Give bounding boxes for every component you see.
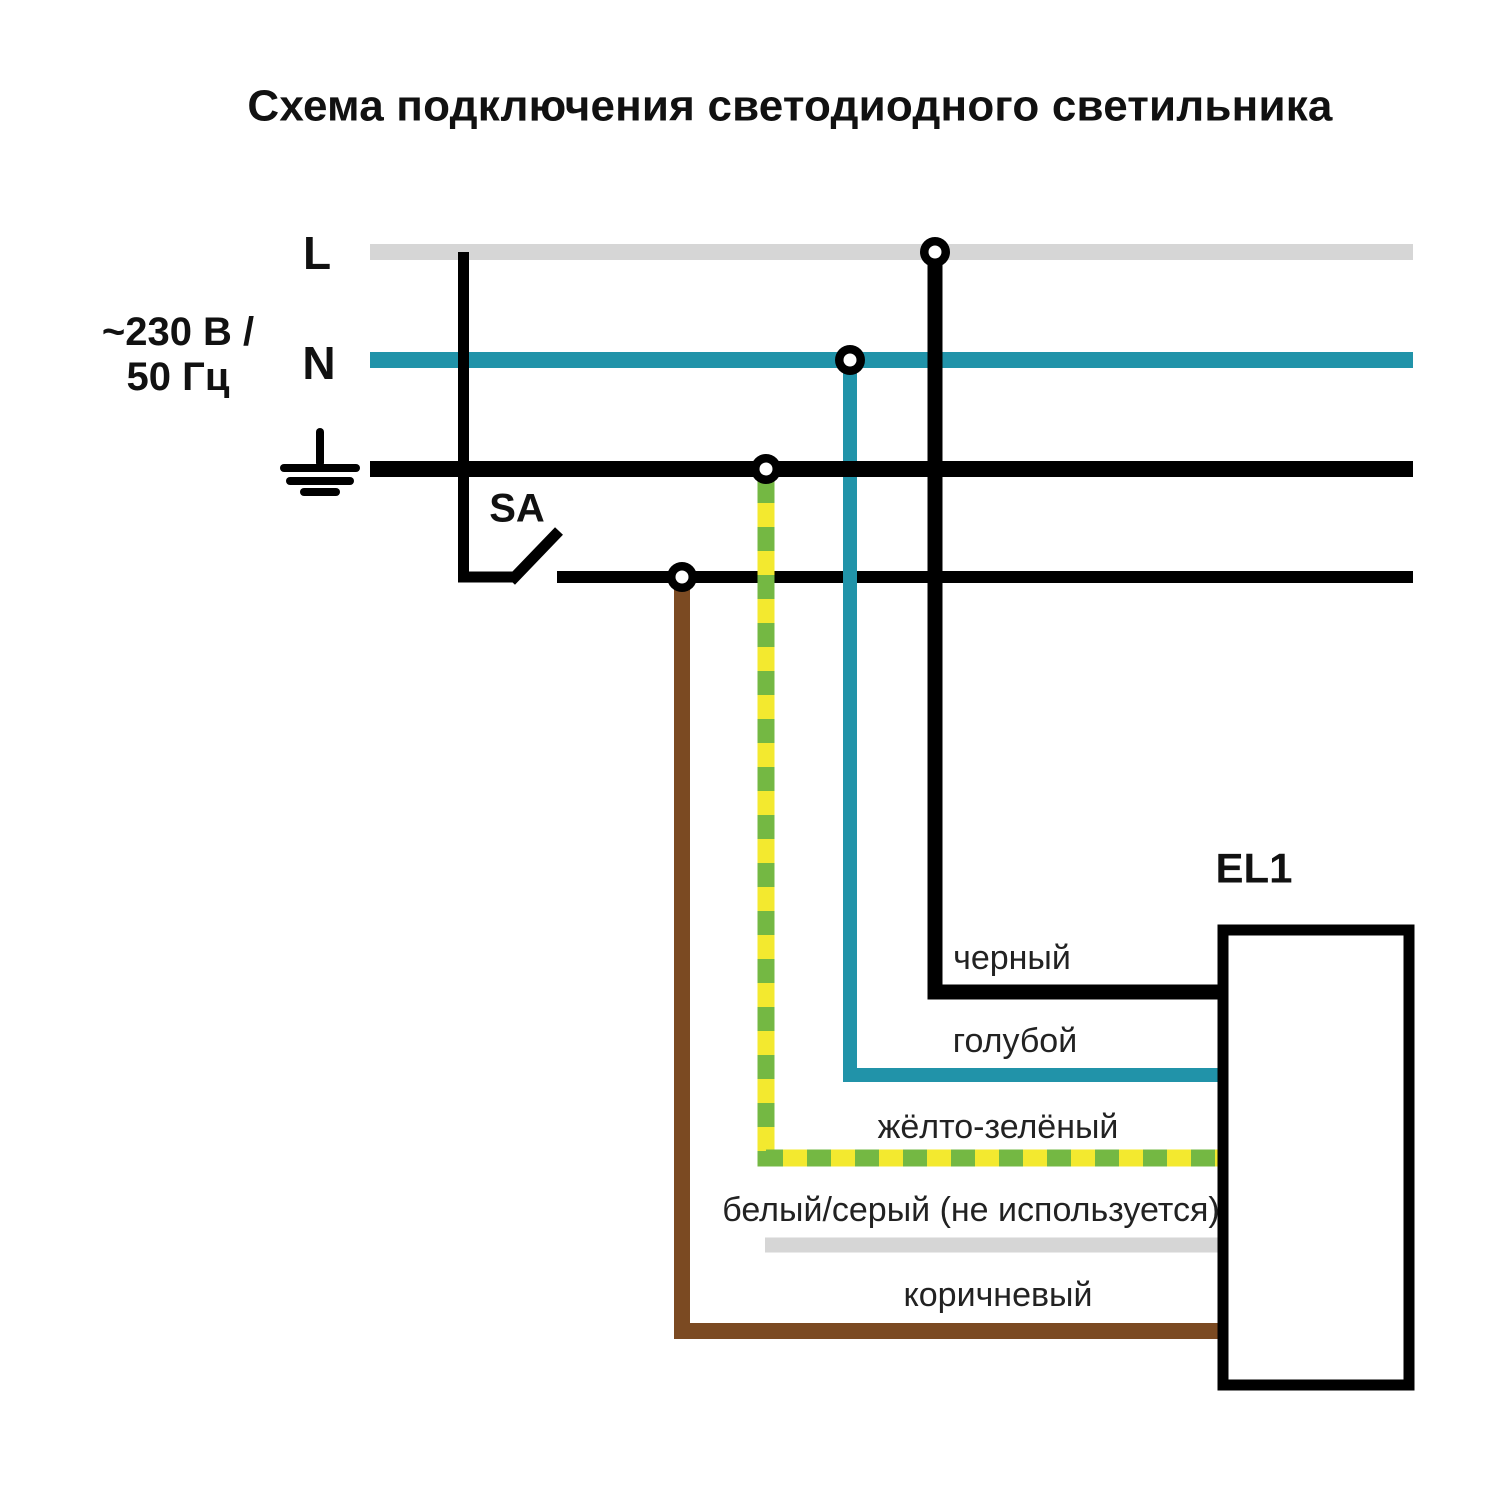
earth-ground-icon: [284, 432, 356, 492]
supply-rating-label: ~230 В / 50 Гц: [102, 310, 254, 400]
luminaire-EL1-label: EL1: [1215, 844, 1292, 891]
terminal-dot-N-center: [844, 354, 857, 367]
switch-blade-icon: [511, 531, 559, 581]
wire-label-yellow-green: жёлто-зелёный: [878, 1108, 1119, 1146]
wire-label-white-gray: белый/серый (не используется): [722, 1191, 1219, 1229]
luminaire-box: [1223, 930, 1409, 1385]
page-title: Схема подключения светодиодного светильн…: [247, 81, 1332, 130]
phase-L-label: L: [303, 228, 331, 280]
schematic-canvas: [0, 0, 1500, 1500]
wire-label-brown: коричневый: [904, 1276, 1093, 1314]
supply-rating-line1: ~230 В /: [102, 310, 254, 355]
wiring-diagram: Схема подключения светодиодного светильн…: [0, 0, 1500, 1500]
terminal-dot-L-center: [929, 246, 942, 259]
switch-SA-label: SA: [489, 487, 545, 532]
supply-rating-line2: 50 Гц: [102, 355, 254, 400]
terminal-dot-switched-center: [676, 571, 689, 584]
wire-label-black: черный: [953, 939, 1071, 977]
terminal-dot-PE-center: [760, 463, 773, 476]
neutral-N-label: N: [302, 338, 335, 390]
terminal-dots: [667, 237, 950, 592]
wire-label-blue: голубой: [953, 1022, 1077, 1060]
